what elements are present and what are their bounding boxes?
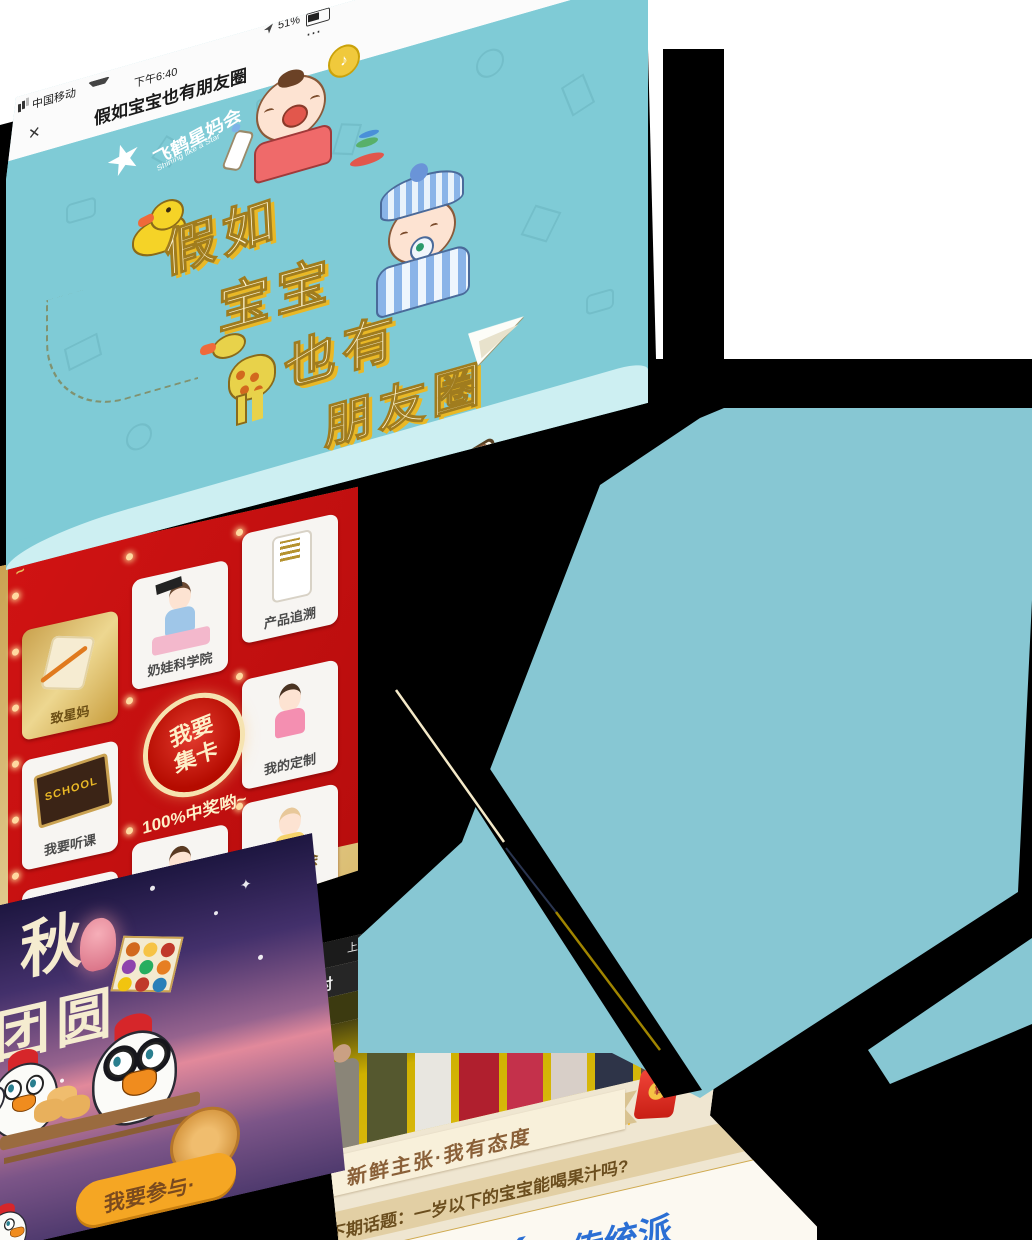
guest-figure	[551, 994, 587, 1100]
bottle-icon	[221, 129, 255, 171]
dashed-path	[46, 257, 198, 423]
menu-cell-science[interactable]: 奶娃科学院	[132, 559, 228, 690]
sky-lantern-icon	[80, 914, 116, 974]
red-envelope-icon: ¥	[633, 1068, 681, 1119]
school-sign: SCHOOL	[44, 775, 98, 804]
paper-plane-icon	[472, 298, 542, 368]
portfolio-collage: ◀ 微信 4G 上 观念没有绝对 往期视频 ✩	[0, 0, 1032, 1240]
signal-icon	[18, 104, 21, 113]
menu-cell-custom[interactable]: 我的定制	[242, 659, 338, 790]
coin-dots	[685, 1065, 693, 1075]
baby-blue-illustration	[362, 166, 482, 330]
status-time: 上	[347, 938, 358, 957]
guest-figure	[367, 1037, 407, 1142]
star-logo-icon: ★	[101, 129, 147, 189]
guest-figure	[641, 979, 677, 1079]
guest-figure	[507, 1008, 543, 1110]
menu-cell-letter[interactable]: 致星妈	[22, 610, 118, 741]
mooncake-box-icon	[110, 936, 183, 993]
pk-label: P K	[458, 1227, 527, 1240]
guest-figure	[415, 1023, 451, 1131]
guest-figure	[595, 985, 633, 1090]
blackboard-icon: SCHOOL	[33, 753, 112, 830]
join-button[interactable]: 我要参与·	[76, 1149, 236, 1230]
menu-cell-trace[interactable]: 产品追溯	[242, 513, 338, 644]
menu-cell-class[interactable]: SCHOOL 我要听课	[22, 740, 118, 871]
sparkle-icon: ✦	[240, 875, 252, 895]
close-icon[interactable]: ✕	[28, 122, 41, 144]
ring-toy-icon	[350, 150, 384, 170]
yuan-symbol: ¥	[647, 1081, 668, 1100]
guest-figure	[459, 1014, 499, 1121]
pk-right: 传统派	[570, 1201, 672, 1240]
hand-phone-icon[interactable]	[435, 430, 519, 519]
girl-icon	[270, 679, 310, 742]
